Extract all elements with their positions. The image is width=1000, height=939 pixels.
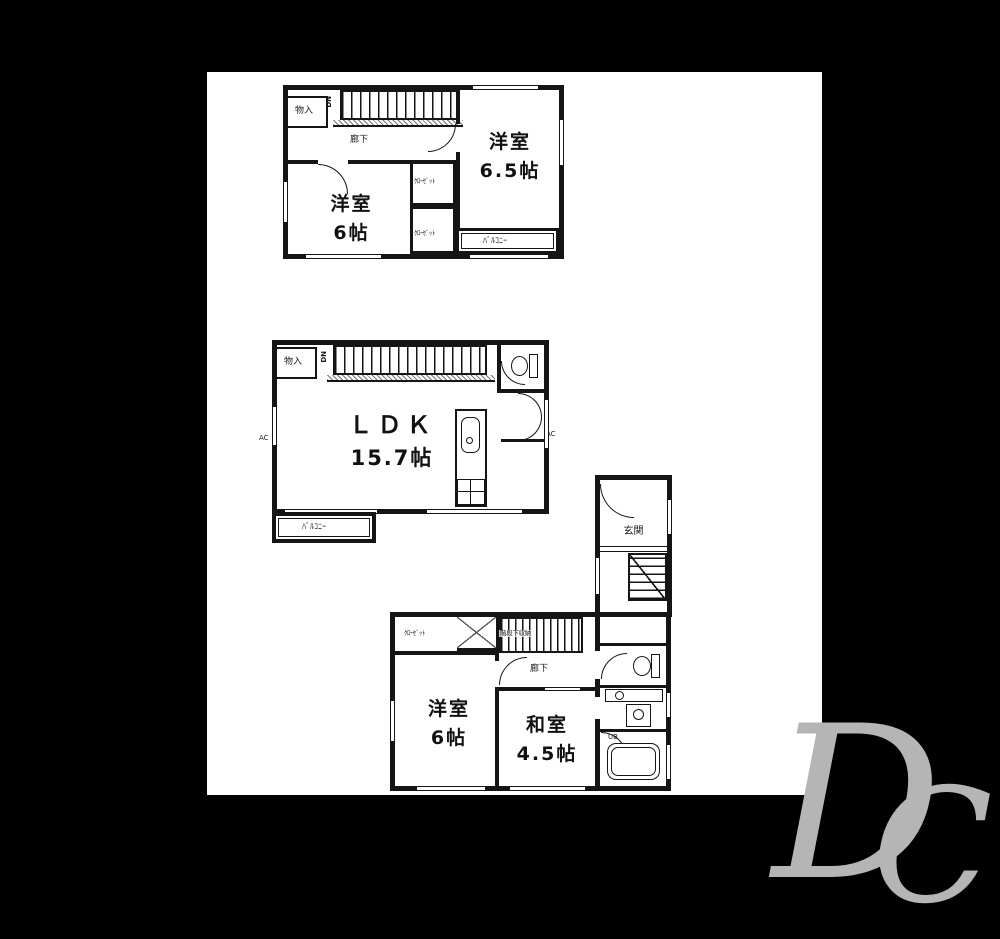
watermark-letter-c: C xyxy=(872,768,993,926)
under-stairs-label: 階段下収納 xyxy=(499,630,532,637)
hallway-label: 廊下 xyxy=(530,665,548,675)
wall xyxy=(395,651,495,655)
sliding-door xyxy=(545,687,580,691)
window xyxy=(473,85,538,90)
window xyxy=(559,120,564,165)
room-name: 和室 xyxy=(497,711,597,740)
room-size: 15.7帖 xyxy=(327,443,457,475)
window xyxy=(666,745,671,779)
wall xyxy=(495,651,499,661)
wall xyxy=(495,687,545,691)
stairs xyxy=(340,90,458,120)
window xyxy=(272,407,277,445)
entry-step-line xyxy=(600,546,667,547)
window xyxy=(595,558,600,594)
door-arc xyxy=(601,653,627,679)
wall xyxy=(501,439,544,442)
stairs xyxy=(628,553,667,601)
room-size: 4.5帖 xyxy=(497,740,597,769)
room-name: 洋室 xyxy=(464,128,556,157)
sink-drain-icon xyxy=(466,437,473,444)
closet-label: ｸﾛｰｾﾞｯﾄ xyxy=(414,178,435,185)
wall xyxy=(595,643,666,646)
window xyxy=(390,701,395,741)
washbasin-sink-icon xyxy=(615,691,624,700)
stairs xyxy=(333,345,487,375)
room-size: 6帖 xyxy=(405,724,493,753)
floorplan-sheet: DN 物入 廊下 ｸﾛｰｾﾞｯﾄ ｸﾛｰｾﾞｯﾄ ﾊﾞﾙｺﾆｰ 洋室 6.5帖 … xyxy=(207,72,822,795)
balcony: ﾊﾞﾙｺﾆｰ xyxy=(456,228,559,254)
toilet-bowl-icon xyxy=(633,656,651,676)
washing-machine-drum-icon xyxy=(633,709,644,720)
plan-top: DN 物入 廊下 ｸﾛｰｾﾞｯﾄ ｸﾛｰｾﾞｯﾄ ﾊﾞﾙｺﾆｰ 洋室 6.5帖 … xyxy=(283,85,564,259)
window xyxy=(510,786,585,791)
ac-mark: AC xyxy=(259,435,269,443)
room-size: 6帖 xyxy=(304,219,399,248)
wall xyxy=(456,90,460,124)
washbasin-icon xyxy=(605,689,663,702)
door-arc xyxy=(600,484,634,518)
room-name: 洋室 xyxy=(405,695,493,724)
stove-icon xyxy=(457,479,485,505)
room-label: ＬＤＫ 15.7帖 xyxy=(327,407,457,475)
toilet-tank-icon xyxy=(651,654,660,678)
door-arc xyxy=(428,124,456,152)
room-label: 洋室 6帖 xyxy=(304,190,399,247)
window xyxy=(667,500,672,534)
door-arc xyxy=(518,393,542,417)
balcony-label: ﾊﾞﾙｺﾆｰ xyxy=(483,237,507,246)
room-size: 6.5帖 xyxy=(464,157,556,186)
wall xyxy=(497,345,501,389)
room-name: ＬＤＫ xyxy=(327,407,457,443)
storage-label: 物入 xyxy=(295,107,313,117)
stairs-direction-label: DN xyxy=(321,351,329,363)
room-label: 洋室 6.5帖 xyxy=(464,128,556,185)
door-arc xyxy=(518,417,542,441)
room-label: 洋室 6帖 xyxy=(405,695,493,752)
stair-landing xyxy=(327,375,495,382)
bathtub-icon xyxy=(607,743,660,780)
closet-box xyxy=(457,617,499,651)
window xyxy=(306,254,381,259)
wall xyxy=(456,152,460,230)
window xyxy=(666,693,671,717)
room-label: 和室 4.5帖 xyxy=(497,711,597,768)
plan-bottom: ｸﾛｰｾﾞｯﾄ 階段下収納 廊下 UB xyxy=(390,612,671,791)
hallway-label: 廊下 xyxy=(350,136,368,146)
bath-label: UB xyxy=(608,734,618,742)
wall xyxy=(288,160,318,164)
window xyxy=(544,400,549,448)
plan-bottom-entry-wing: 玄関 xyxy=(595,475,672,617)
wall xyxy=(595,679,600,697)
balcony-label: ﾊﾞﾙｺﾆｰ xyxy=(302,523,326,532)
plan-middle: 物入 DN ＬＤＫ 15.7帖 AC AC xyxy=(272,340,549,514)
letterbox-canvas: { "colors": { "ink": "#151515", "paper":… xyxy=(0,0,1000,900)
room-name: 洋室 xyxy=(304,190,399,219)
closet-label: ｸﾛｰｾﾞｯﾄ xyxy=(404,630,425,637)
wall xyxy=(595,685,666,688)
window xyxy=(470,254,548,259)
window xyxy=(427,509,522,514)
window xyxy=(417,786,485,791)
toilet-tank-icon xyxy=(529,354,538,378)
storage-label: 物入 xyxy=(284,358,302,368)
kitchen-sink-icon xyxy=(461,417,480,453)
door-arc xyxy=(501,361,525,385)
balcony: ﾊﾞﾙｺﾆｰ xyxy=(272,512,376,543)
door-arc xyxy=(499,657,527,685)
window xyxy=(283,182,288,222)
entrance-label: 玄関 xyxy=(606,526,661,537)
closet-label: ｸﾛｰｾﾞｯﾄ xyxy=(414,230,435,237)
